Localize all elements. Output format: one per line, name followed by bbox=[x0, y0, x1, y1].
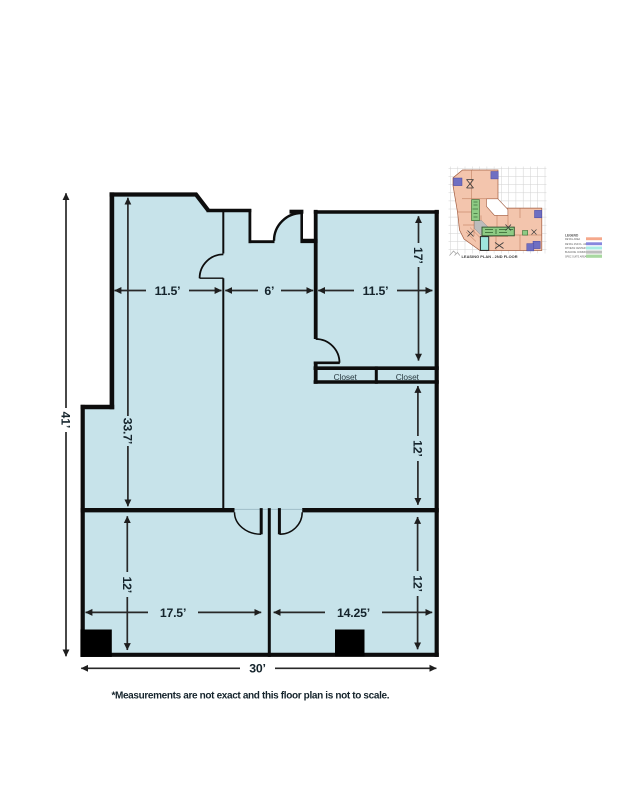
svg-text:6’: 6’ bbox=[264, 284, 274, 298]
svg-text:11.5’: 11.5’ bbox=[155, 284, 181, 298]
svg-text:*Measurements are not exact an: *Measurements are not exact and this flo… bbox=[111, 691, 389, 702]
svg-text:Closet: Closet bbox=[396, 372, 420, 382]
svg-text:17.5’: 17.5’ bbox=[160, 606, 186, 620]
svg-text:11.5’: 11.5’ bbox=[363, 284, 389, 298]
svg-text:33.7’: 33.7’ bbox=[121, 418, 135, 444]
svg-text:12’: 12’ bbox=[411, 440, 425, 457]
svg-text:RETAIL AREA: RETAIL AREA bbox=[565, 238, 581, 241]
svg-text:41’: 41’ bbox=[59, 412, 73, 429]
svg-text:Closet: Closet bbox=[334, 372, 358, 382]
svg-text:SPEC SUITE AREA: SPEC SUITE AREA bbox=[565, 255, 587, 258]
svg-text:12’: 12’ bbox=[120, 576, 134, 593]
svg-text:BUILDING COMMON: BUILDING COMMON bbox=[565, 251, 588, 254]
svg-text:14.25’: 14.25’ bbox=[337, 606, 370, 620]
svg-text:LEGEND: LEGEND bbox=[565, 234, 579, 238]
svg-text:30’: 30’ bbox=[249, 662, 266, 676]
svg-text:FITNESS CENTER: FITNESS CENTER bbox=[565, 247, 586, 250]
svg-text:17’: 17’ bbox=[411, 247, 425, 263]
svg-text:12’: 12’ bbox=[410, 575, 424, 592]
svg-text:LEASING PLAN - 2ND FLOOR: LEASING PLAN - 2ND FLOOR bbox=[462, 254, 518, 259]
